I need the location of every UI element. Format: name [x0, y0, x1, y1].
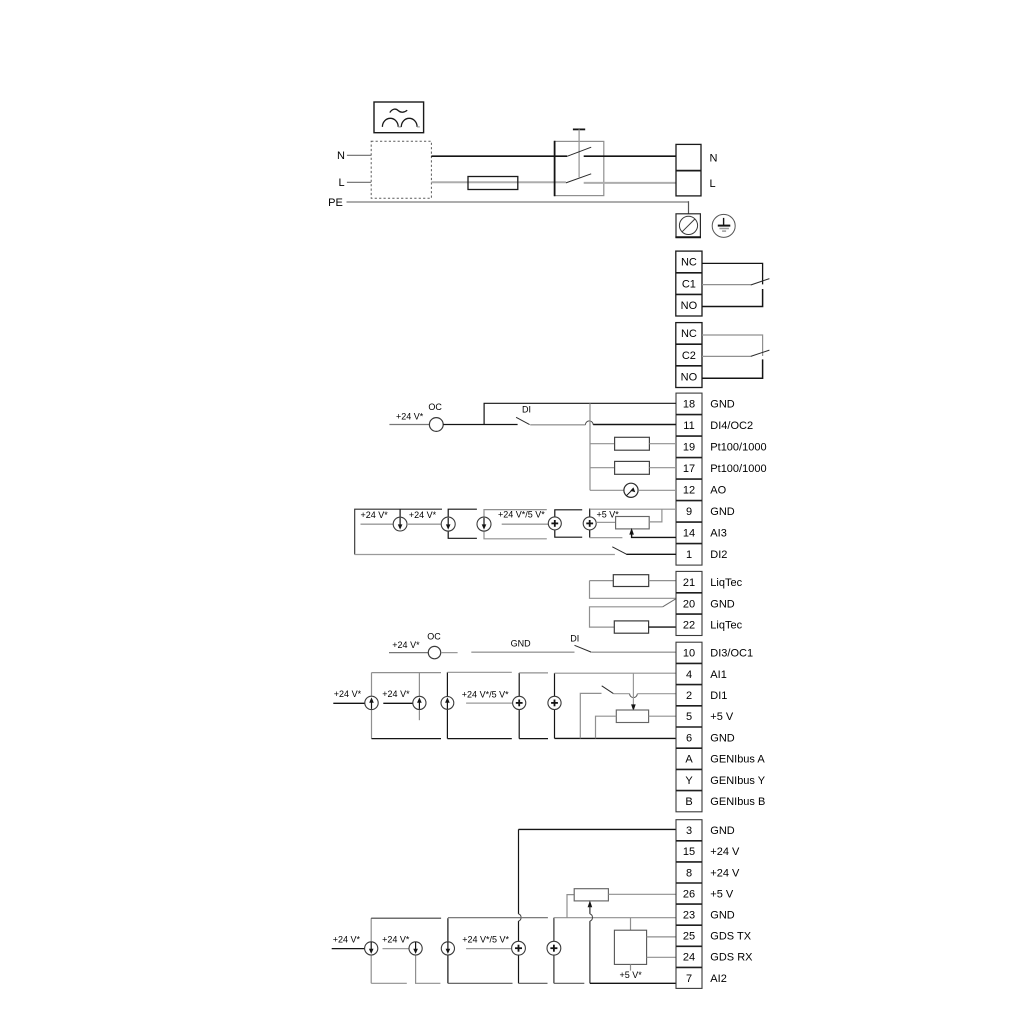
svg-text:LiqTec: LiqTec — [710, 620, 742, 632]
svg-text:+5 V: +5 V — [710, 711, 734, 723]
svg-text:L: L — [710, 178, 716, 190]
svg-text:DI1: DI1 — [710, 690, 727, 702]
svg-text:22: 22 — [683, 620, 695, 632]
svg-text:+24 V*: +24 V* — [396, 411, 424, 421]
svg-text:NO: NO — [681, 372, 698, 384]
svg-text:AI2: AI2 — [710, 973, 727, 985]
svg-text:3: 3 — [686, 825, 692, 837]
svg-text:DI4/OC2: DI4/OC2 — [710, 420, 753, 432]
svg-text:Y: Y — [685, 775, 693, 787]
svg-text:+24 V*/5 V*: +24 V*/5 V* — [462, 934, 509, 944]
svg-text:DI2: DI2 — [710, 549, 727, 561]
svg-text:GND: GND — [710, 399, 735, 411]
svg-text:23: 23 — [683, 910, 695, 922]
svg-text:DI: DI — [522, 405, 531, 415]
svg-text:Pt100/1000: Pt100/1000 — [710, 463, 766, 475]
svg-text:PE: PE — [328, 197, 343, 209]
svg-text:OC: OC — [428, 402, 442, 412]
svg-text:GND: GND — [710, 732, 735, 744]
svg-text:4: 4 — [686, 669, 692, 681]
svg-text:GND: GND — [710, 598, 735, 610]
svg-text:GND: GND — [710, 910, 735, 922]
svg-text:C2: C2 — [682, 350, 696, 362]
svg-text:GND: GND — [710, 506, 735, 518]
svg-text:B: B — [685, 796, 692, 808]
svg-text:+24 V: +24 V — [710, 867, 740, 879]
svg-text:N: N — [710, 152, 718, 164]
svg-text:GND: GND — [511, 638, 531, 648]
svg-text:26: 26 — [683, 888, 695, 900]
svg-text:NO: NO — [681, 300, 698, 312]
svg-text:5: 5 — [686, 711, 692, 723]
svg-text:+24 V*: +24 V* — [382, 934, 410, 944]
svg-text:L: L — [338, 177, 344, 189]
svg-text:7: 7 — [686, 973, 692, 985]
svg-text:GDS RX: GDS RX — [710, 952, 753, 964]
svg-text:19: 19 — [683, 442, 695, 454]
svg-text:DI: DI — [570, 634, 579, 644]
svg-text:GENIbus A: GENIbus A — [710, 754, 765, 766]
svg-text:OC: OC — [427, 631, 441, 641]
svg-text:+24 V: +24 V — [710, 846, 740, 858]
svg-text:AI3: AI3 — [710, 528, 727, 540]
svg-text:GND: GND — [710, 825, 735, 837]
svg-text:+24 V*: +24 V* — [392, 640, 420, 650]
svg-text:15: 15 — [683, 846, 695, 858]
svg-text:+24 V*: +24 V* — [409, 510, 437, 520]
svg-text:18: 18 — [683, 399, 695, 411]
svg-text:25: 25 — [683, 931, 695, 943]
svg-text:+24 V*: +24 V* — [334, 689, 362, 699]
svg-text:11: 11 — [683, 420, 694, 432]
svg-text:NC: NC — [681, 257, 697, 269]
svg-text:GENIbus Y: GENIbus Y — [710, 775, 765, 787]
svg-text:A: A — [685, 754, 693, 766]
svg-text:20: 20 — [683, 598, 695, 610]
svg-text:GENIbus B: GENIbus B — [710, 796, 765, 808]
svg-text:+5 V*: +5 V* — [620, 970, 643, 980]
svg-text:Pt100/1000: Pt100/1000 — [710, 442, 766, 454]
svg-text:AO: AO — [710, 485, 726, 497]
svg-text:17: 17 — [683, 463, 695, 475]
svg-text:LiqTec: LiqTec — [710, 577, 742, 589]
svg-text:2: 2 — [686, 690, 692, 702]
svg-text:C1: C1 — [682, 278, 696, 290]
svg-text:8: 8 — [686, 867, 692, 879]
svg-text:+24 V*/5 V*: +24 V*/5 V* — [498, 510, 545, 520]
svg-text:+24 V*/5 V*: +24 V*/5 V* — [462, 690, 509, 700]
svg-text:1: 1 — [686, 549, 692, 561]
svg-text:24: 24 — [683, 952, 695, 964]
svg-text:14: 14 — [683, 528, 695, 540]
svg-text:21: 21 — [683, 577, 695, 589]
svg-text:N: N — [337, 150, 345, 162]
svg-text:+24 V*: +24 V* — [361, 510, 389, 520]
svg-text:10: 10 — [683, 648, 695, 660]
svg-text:DI3/OC1: DI3/OC1 — [710, 648, 753, 660]
svg-text:12: 12 — [683, 485, 695, 497]
svg-text:GDS TX: GDS TX — [710, 931, 751, 943]
svg-text:9: 9 — [686, 506, 692, 518]
svg-text:6: 6 — [686, 732, 692, 744]
svg-text:+24 V*: +24 V* — [382, 689, 410, 699]
svg-text:+24 V*: +24 V* — [333, 934, 361, 944]
svg-text:NC: NC — [681, 328, 697, 340]
svg-text:AI1: AI1 — [710, 669, 727, 681]
svg-text:+5 V: +5 V — [710, 888, 734, 900]
